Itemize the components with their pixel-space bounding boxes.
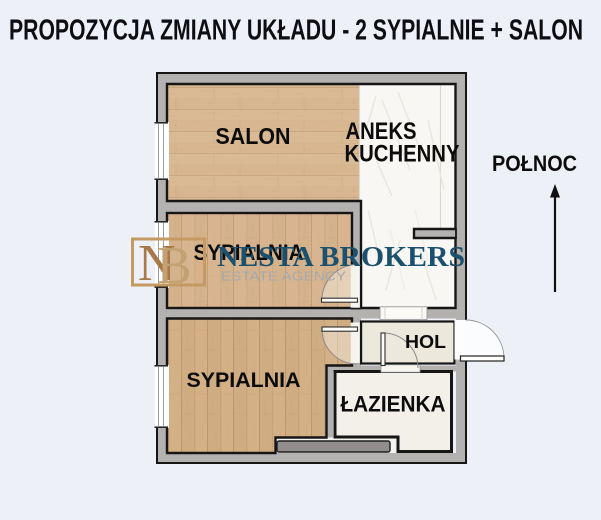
svg-text:NESTA BROKERS: NESTA BROKERS — [217, 241, 465, 273]
svg-text:B: B — [157, 237, 192, 295]
svg-text:SALON: SALON — [216, 123, 291, 149]
svg-text:ŁAZIENKA: ŁAZIENKA — [341, 392, 446, 417]
svg-text:KUCHENNY: KUCHENNY — [345, 141, 460, 168]
svg-text:PROPOZYCJA ZMIANY UKŁADU - 2 S: PROPOZYCJA ZMIANY UKŁADU - 2 SYPIALNIE +… — [9, 15, 583, 47]
svg-text:SYPIALNIA: SYPIALNIA — [187, 369, 301, 392]
svg-text:ESTATE AGENCY: ESTATE AGENCY — [221, 270, 347, 284]
svg-text:HOL: HOL — [405, 332, 446, 352]
svg-text:POŁNOC: POŁNOC — [492, 151, 577, 176]
